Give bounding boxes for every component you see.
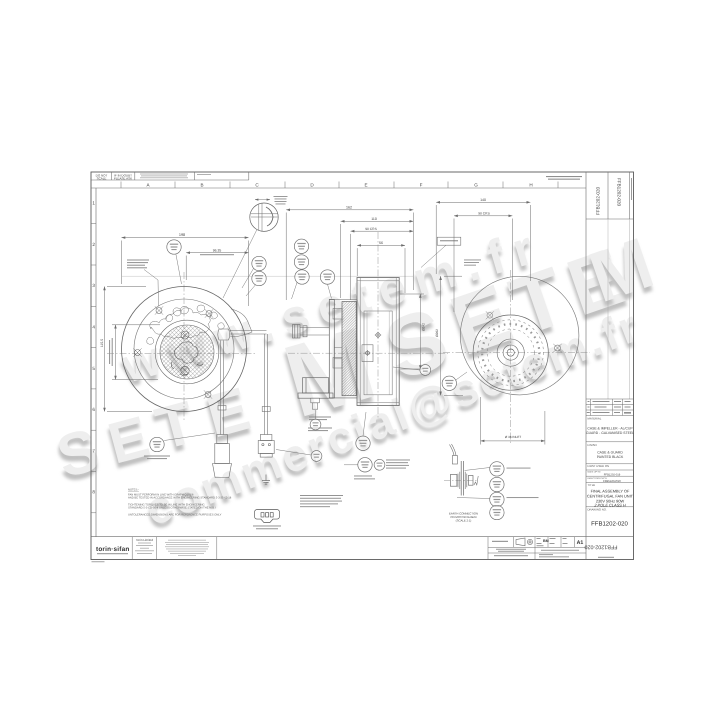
svg-text:MATERIAL: MATERIAL — [588, 417, 602, 421]
svg-text:FFB1202-019: FFB1202-019 — [604, 474, 621, 477]
svg-text:2: 2 — [92, 242, 95, 247]
svg-text:BM: BM — [543, 539, 549, 543]
svg-text:FFB1202-020: FFB1202-020 — [617, 178, 622, 207]
svg-text:56: 56 — [379, 241, 383, 245]
svg-text:DRAWING NO.: DRAWING NO. — [588, 508, 607, 512]
svg-text:98 CRS: 98 CRS — [365, 227, 377, 231]
svg-text:7: 7 — [92, 448, 95, 453]
svg-text:140: 140 — [480, 198, 486, 202]
svg-text:TITLE: TITLE — [588, 483, 596, 487]
svg-text:PLEASE ASK: PLEASE ASK — [114, 177, 132, 181]
svg-text:FFB1202-020: FFB1202-020 — [585, 544, 618, 550]
svg-text:198: 198 — [179, 233, 185, 237]
svg-text:98 CRS: 98 CRS — [478, 211, 490, 215]
svg-text:torin·sifan: torin·sifan — [96, 546, 129, 553]
svg-text:PAINTED BLACK: PAINTED BLACK — [597, 455, 624, 459]
svg-text:(SCALE 2:1): (SCALE 2:1) — [456, 519, 472, 523]
svg-text:8: 8 — [92, 490, 95, 495]
svg-text:Ø242: Ø242 — [422, 323, 426, 331]
svg-text:5: 5 — [92, 366, 95, 371]
svg-text:G: G — [474, 183, 478, 188]
svg-text:FINISH: FINISH — [588, 443, 597, 447]
svg-text:UNTOLERANCED DIMENSIONS ARE FO: UNTOLERANCED DIMENSIONS ARE FOR REFERENC… — [128, 513, 222, 516]
svg-text:MAKE UP TO:: MAKE UP TO: — [588, 471, 602, 474]
svg-text:B: B — [200, 183, 203, 188]
svg-text:GUARD - GALVANISED STEEL: GUARD - GALVANISED STEEL — [586, 431, 634, 435]
svg-text:6: 6 — [92, 407, 95, 412]
svg-text:Ø262: Ø262 — [435, 329, 439, 337]
svg-text:F: F — [420, 183, 423, 188]
svg-text:STANDARD 5-3-CD-05-4 UNLESS OT: STANDARD 5-3-CD-05-4 UNLESS OTHERWISE ST… — [128, 507, 216, 510]
svg-text:NOTES:-: NOTES:- — [128, 489, 139, 492]
svg-text:FFB61202/020: FFB61202/020 — [603, 480, 621, 483]
svg-text:3: 3 — [92, 283, 95, 288]
svg-text:115.5: 115.5 — [100, 339, 104, 347]
svg-text:FFB1202-020: FFB1202-020 — [591, 521, 628, 528]
svg-text:110: 110 — [371, 217, 377, 221]
svg-text:H: H — [529, 183, 532, 188]
svg-text:Ø 36 INLET: Ø 36 INLET — [505, 435, 521, 439]
svg-text:Torin Limited: Torin Limited — [136, 538, 153, 542]
svg-text:FIRST USED ON: FIRST USED ON — [588, 464, 610, 468]
svg-text:A1: A1 — [577, 540, 584, 546]
svg-text:FFB1202-020: FFB1202-020 — [596, 186, 601, 215]
svg-text:E: E — [364, 183, 367, 188]
svg-text:1: 1 — [92, 201, 95, 206]
svg-text:AND BE TESTED IN ACCORDANCE WI: AND BE TESTED IN ACCORDANCE WITH ENGINEE… — [128, 497, 232, 500]
svg-text:4: 4 — [92, 325, 95, 330]
svg-text:SCALE: SCALE — [97, 177, 107, 181]
svg-text:96.35: 96.35 — [213, 248, 222, 252]
svg-text:CASE & IMPELLER - AL/CUP: CASE & IMPELLER - AL/CUP — [587, 427, 633, 431]
svg-text:CASE & GUARD: CASE & GUARD — [597, 451, 623, 455]
svg-text:162: 162 — [346, 205, 352, 209]
